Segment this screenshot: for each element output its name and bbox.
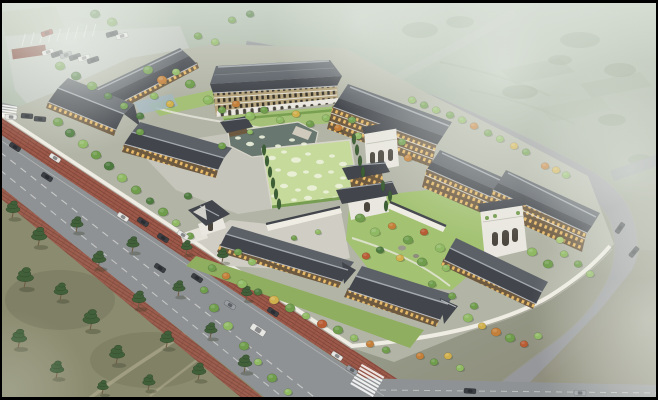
lily-pad bbox=[301, 142, 307, 145]
aerial-rendering: Aerial bird's-eye architectural renderin… bbox=[0, 0, 658, 400]
lily-pad bbox=[314, 174, 322, 178]
lily-pad bbox=[268, 156, 276, 160]
conifer-tree bbox=[271, 178, 275, 189]
lily-pad bbox=[246, 142, 254, 146]
lily-pad bbox=[259, 135, 265, 138]
conifer-tree bbox=[262, 145, 266, 156]
conifer-tree bbox=[277, 199, 281, 210]
lily-pad bbox=[275, 168, 281, 171]
conifer-tree bbox=[274, 189, 278, 200]
lily-pad bbox=[235, 136, 241, 139]
lily-pad bbox=[303, 170, 309, 173]
lily-pad bbox=[304, 196, 312, 200]
lily-pad bbox=[291, 198, 297, 201]
lily-pad bbox=[339, 162, 347, 166]
conifer-tree bbox=[384, 201, 388, 212]
lily-pad bbox=[323, 190, 329, 193]
conifer-tree bbox=[268, 167, 272, 178]
lily-pad bbox=[281, 150, 287, 153]
lily-pad bbox=[307, 185, 317, 191]
lily-pad bbox=[305, 152, 311, 155]
garden-rock-1 bbox=[398, 246, 406, 251]
lily-pad bbox=[280, 184, 288, 188]
lily-pad bbox=[287, 171, 297, 177]
lily-pad bbox=[335, 184, 343, 188]
lily-pad bbox=[295, 188, 301, 191]
lily-pad bbox=[289, 138, 295, 141]
car bbox=[464, 388, 476, 394]
lily-pad bbox=[275, 144, 281, 147]
lily-pad bbox=[328, 170, 334, 173]
garden-rock-2 bbox=[413, 254, 419, 258]
conifer-tree bbox=[265, 156, 269, 167]
lily-pad bbox=[329, 154, 335, 157]
lily-pad bbox=[291, 157, 301, 163]
lily-pad bbox=[340, 176, 346, 179]
lily-pad bbox=[316, 160, 324, 164]
rendering-canvas: Aerial bird's-eye architectural renderin… bbox=[0, 0, 658, 400]
